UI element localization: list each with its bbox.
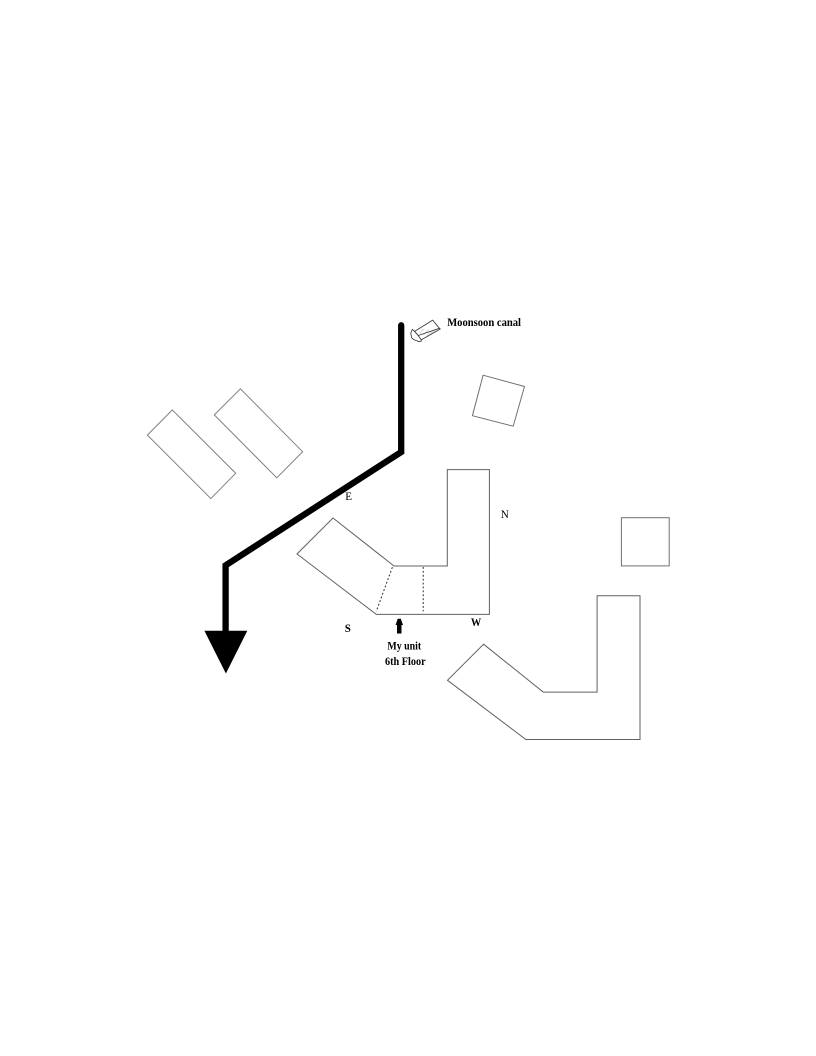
svg-text:6th Floor: 6th Floor — [385, 654, 426, 668]
svg-text:My unit: My unit — [387, 639, 421, 653]
svg-text:N: N — [501, 507, 509, 521]
svg-text:S: S — [345, 621, 351, 635]
svg-text:Moonsoon canal: Moonsoon canal — [447, 315, 521, 329]
svg-text:E: E — [345, 489, 352, 503]
svg-text:W: W — [471, 615, 481, 629]
